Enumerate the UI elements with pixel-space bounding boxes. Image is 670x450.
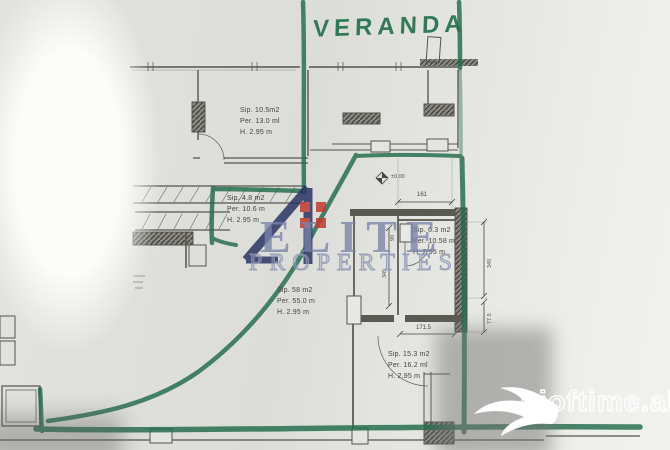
pillar-white-a	[371, 141, 390, 152]
pillar-central	[347, 296, 361, 324]
green-top-connector	[356, 155, 460, 156]
room-area: Sip. 15.3 m2	[388, 349, 430, 360]
wall-hatched-a	[343, 113, 380, 124]
photo-overexposed-area	[0, 0, 161, 355]
room-area: Sip. 58 m2	[277, 285, 315, 296]
green-jog-vertical	[212, 188, 213, 243]
dim-right-upper: 345	[487, 259, 493, 268]
wall-63-bottom-gap	[394, 315, 405, 322]
wall-63-bottom	[350, 315, 462, 322]
wall-hatched-b	[424, 104, 454, 116]
njoftime-logo-text: njoftime.al	[520, 386, 670, 419]
room-perimeter: Per. 55.0 m	[277, 296, 315, 307]
room-label-58: Sip. 58 m2 Per. 55.0 m H. 2.95 m	[277, 285, 315, 319]
level-marker	[376, 172, 388, 184]
elite-watermark-tagline: PROPERTIES	[249, 250, 459, 277]
veranda-handwriting: VERANDA	[313, 10, 468, 43]
room-perimeter: Per. 13.0 ml	[240, 116, 280, 127]
dim-top-width: 161	[417, 192, 427, 198]
room-label-10-5: Sip. 10.5m2 Per. 13.0 ml H. 2.95 m	[240, 105, 280, 139]
room-perimeter: Per. 16.2 ml	[388, 360, 430, 371]
room-area: Sip. 10.5m2	[240, 105, 280, 116]
floorplan-photo: VERANDA Sip. 10.5m2 Per. 13.0 ml H. 2.95…	[0, 0, 670, 450]
pillar-hatched	[192, 102, 205, 132]
green-right-faint	[460, 68, 461, 156]
green-veranda-left	[303, 2, 304, 192]
door-arc-room1	[198, 134, 224, 160]
room-label-15-3: Sip. 15.3 m2 Per. 16.2 ml H. 2.95 m	[388, 349, 430, 383]
veranda-box	[426, 37, 441, 63]
niche-box	[189, 245, 206, 266]
room-height: H. 2.95 m	[240, 127, 280, 138]
wall-hatched-top-right	[420, 59, 478, 66]
room-height: H. 2.95 m	[277, 307, 315, 318]
room-height: H. 2.95 m	[388, 371, 430, 382]
green-jog-hook	[212, 238, 236, 245]
wall-room1-bottom	[193, 158, 308, 163]
dim-right-lower: 77.5	[487, 313, 493, 324]
pillar-white-b	[427, 139, 448, 151]
level-marker-value: ±0.00	[391, 174, 405, 180]
dim-bottom-width: 171.5	[416, 325, 431, 331]
photo-shadow-corner	[0, 414, 122, 450]
